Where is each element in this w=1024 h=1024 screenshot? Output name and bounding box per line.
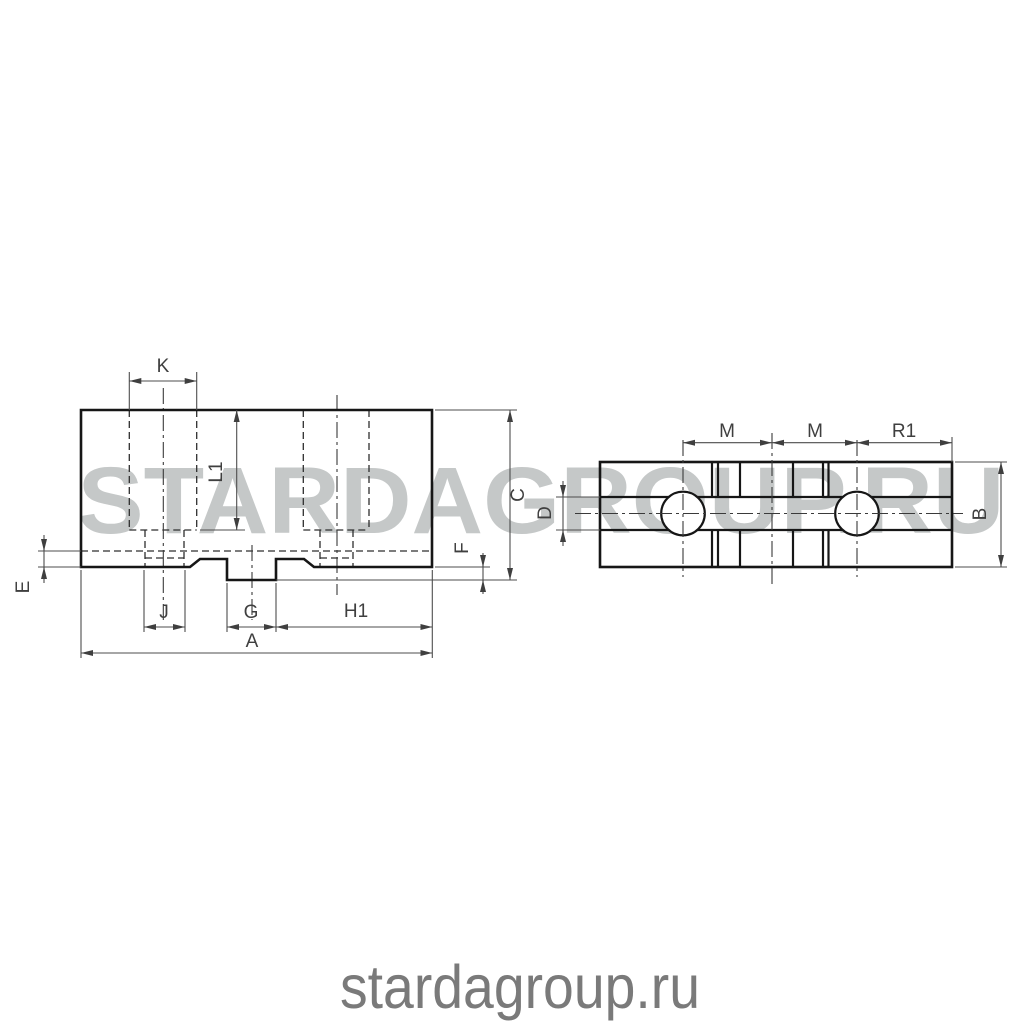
- dim-label-k: K: [157, 356, 170, 377]
- dim-label-r1: R1: [892, 421, 916, 442]
- dim-label-g: G: [244, 602, 259, 623]
- dim-label-m1: M: [719, 421, 735, 442]
- dim-label-b: B: [970, 508, 991, 521]
- dim-label-j: J: [159, 602, 169, 623]
- watermark-small: stardagroup.ru: [340, 953, 700, 1021]
- dim-label-h1: H1: [344, 601, 368, 622]
- dim-label-f: F: [452, 542, 473, 554]
- dim-label-c: C: [508, 488, 529, 502]
- dim-label-m2: M: [807, 421, 823, 442]
- dim-label-a: A: [246, 631, 259, 652]
- dim-label-e: E: [13, 581, 34, 594]
- technical-drawing: STARDAGROUP.RU: [0, 0, 1024, 1024]
- dim-label-l1: L1: [206, 461, 227, 482]
- dim-label-d: D: [535, 506, 556, 520]
